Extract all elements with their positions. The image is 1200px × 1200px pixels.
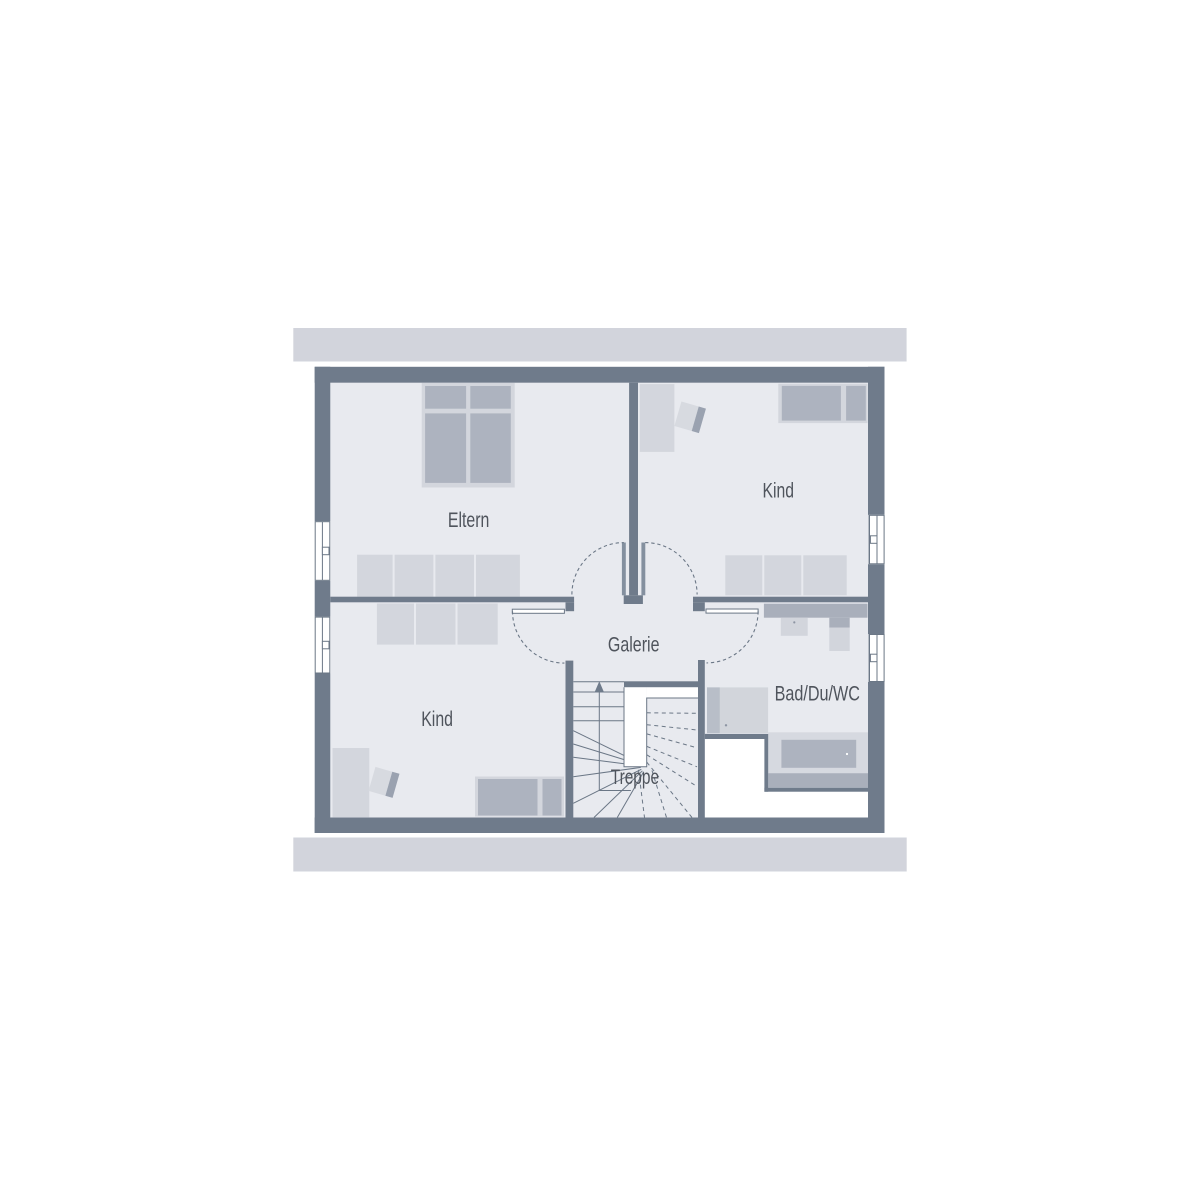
svg-text:Eltern: Eltern [448,509,490,532]
svg-text:Treppe: Treppe [611,766,659,789]
svg-text:Kind: Kind [763,480,795,503]
svg-text:Galerie: Galerie [608,634,660,657]
svg-text:Kind: Kind [421,708,453,731]
svg-text:Bad/Du/WC: Bad/Du/WC [775,683,860,706]
